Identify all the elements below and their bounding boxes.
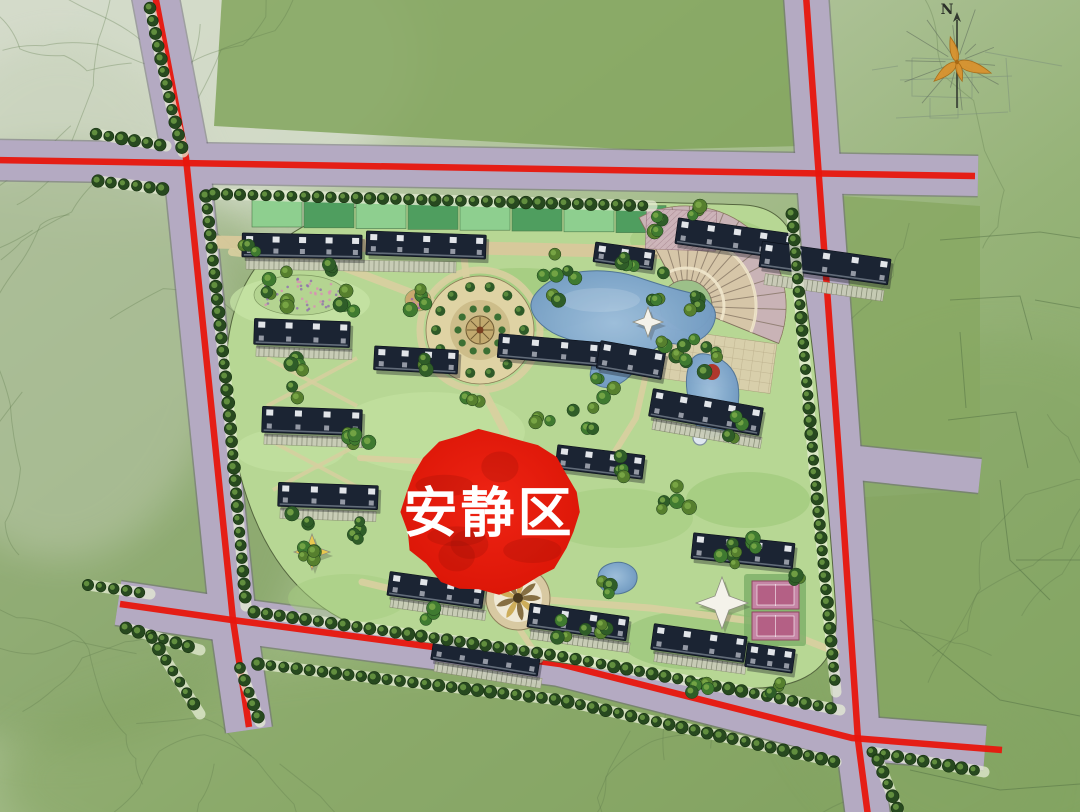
garden-plot [252,200,302,227]
residential-building [373,346,461,379]
quiet-zone-label: 安静区 [404,481,575,544]
east-field-upper [842,196,980,452]
garden-plot [356,202,406,229]
master-plan-canvas: 安静区 N [0,0,1080,812]
garden-plot [304,201,354,228]
north-field [214,0,800,150]
garden-plot [408,202,458,229]
residential-building [253,318,353,351]
compass-north-label: N [941,2,954,18]
residential-building [365,231,489,263]
sports-court [752,612,799,640]
site-plan-image: 安静区 N [0,0,1080,812]
east-branch-road [848,462,980,476]
residential-building [242,233,365,263]
